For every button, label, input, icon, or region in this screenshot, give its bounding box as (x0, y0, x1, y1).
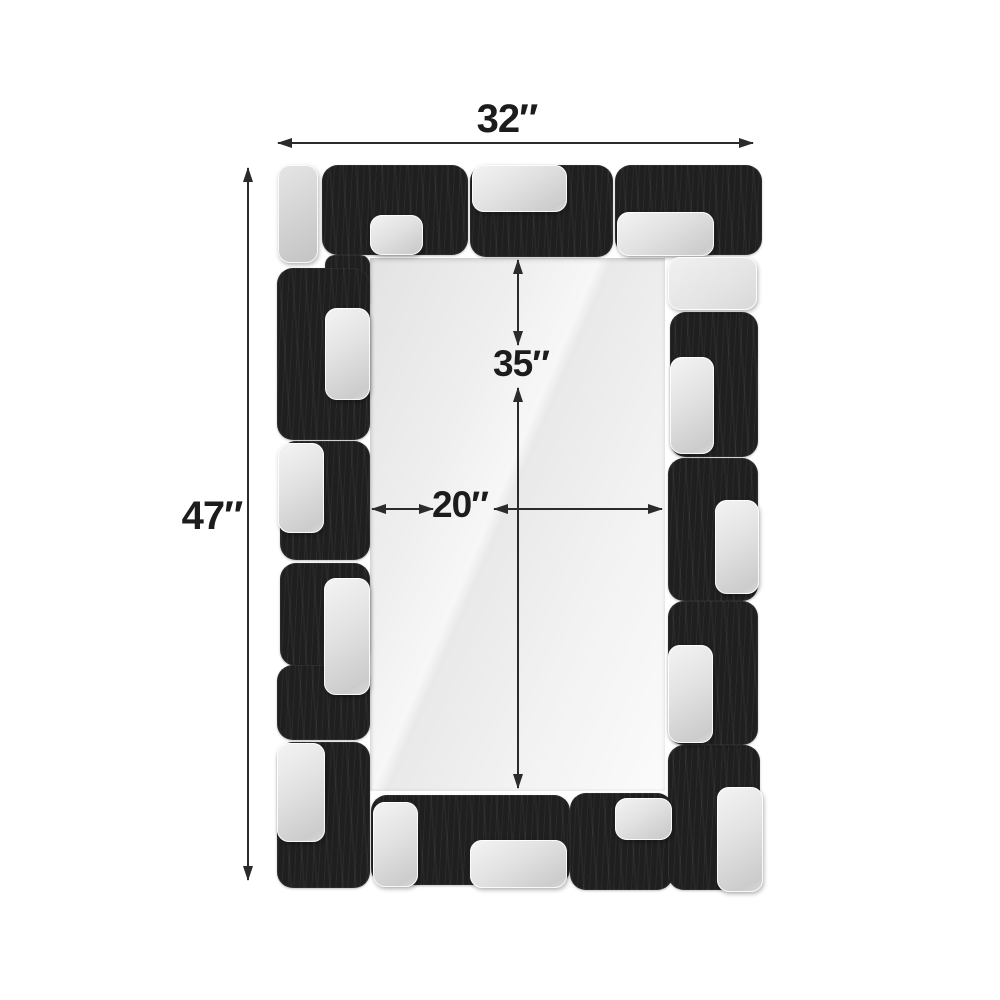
frame-accent-silver (278, 165, 318, 263)
mirror-height-label: 35″ (461, 345, 581, 384)
mirror-width-dimension-line-right (494, 508, 662, 510)
arrow-right-icon (739, 138, 754, 148)
frame-accent-silver (472, 165, 567, 212)
arrow-up-icon (243, 167, 253, 182)
mirror-height-dimension-line-lower (517, 388, 519, 788)
frame-accent-silver (470, 840, 567, 888)
arrow-down-icon (513, 774, 523, 789)
arrow-down-icon (243, 866, 253, 881)
mirror-height-dimension-line-upper (517, 260, 519, 345)
arrow-left-icon (277, 138, 292, 148)
frame-accent-silver (717, 787, 763, 892)
frame-accent-silver (277, 743, 325, 842)
frame-accent-silver (715, 500, 759, 594)
arrow-left-icon (371, 504, 386, 514)
frame-accent-silver (670, 357, 714, 454)
arrow-right-icon (648, 504, 663, 514)
frame-accent-silver (615, 798, 672, 840)
frame-accent-silver (668, 257, 757, 310)
arrow-left-icon (493, 504, 508, 514)
frame-accent-silver (617, 212, 714, 256)
overall-width-dimension-line (278, 142, 753, 144)
frame-accent-silver (373, 802, 418, 887)
frame-accent-silver (324, 578, 370, 695)
overall-height-label: 47″ (162, 495, 262, 537)
product-dimension-diagram: 32″ 47″ 35″ 20″ (0, 0, 1000, 1000)
arrow-up-icon (513, 259, 523, 274)
frame-accent-silver (668, 645, 713, 743)
frame-accent-silver (325, 308, 370, 400)
frame-accent-silver (370, 215, 423, 255)
overall-width-label: 32″ (447, 98, 567, 140)
arrow-up-icon (513, 387, 523, 402)
frame-accent-silver (278, 443, 324, 533)
